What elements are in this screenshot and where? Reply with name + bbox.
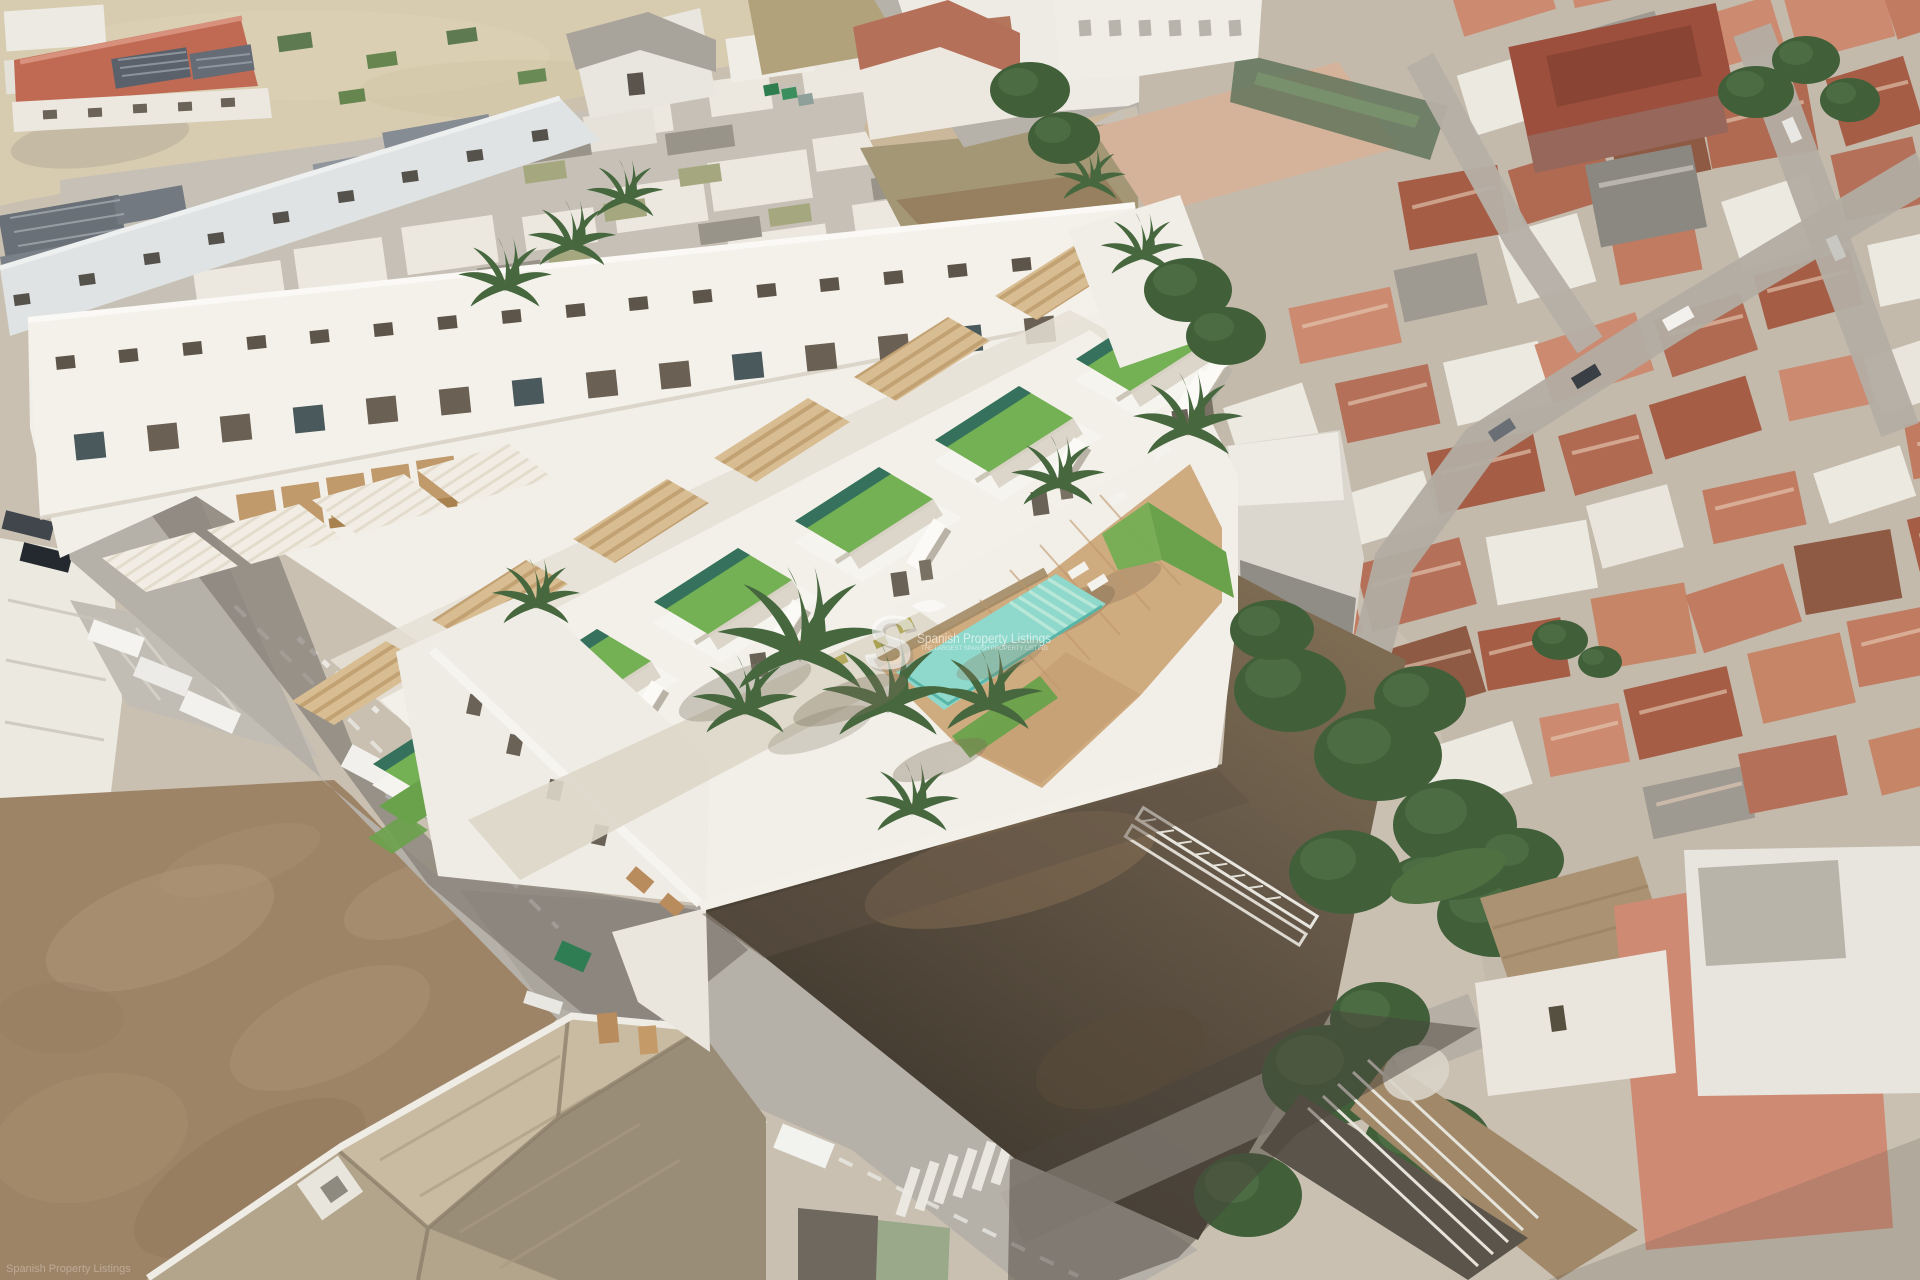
- svg-text:THE LARGEST SPANISH PROPERTY L: THE LARGEST SPANISH PROPERTY LISTING: [921, 645, 1048, 652]
- svg-text:S: S: [864, 601, 915, 686]
- svg-text:Spanish Property Listings: Spanish Property Listings: [917, 630, 1051, 646]
- svg-text:Spanish Property Listings: Spanish Property Listings: [6, 1263, 131, 1275]
